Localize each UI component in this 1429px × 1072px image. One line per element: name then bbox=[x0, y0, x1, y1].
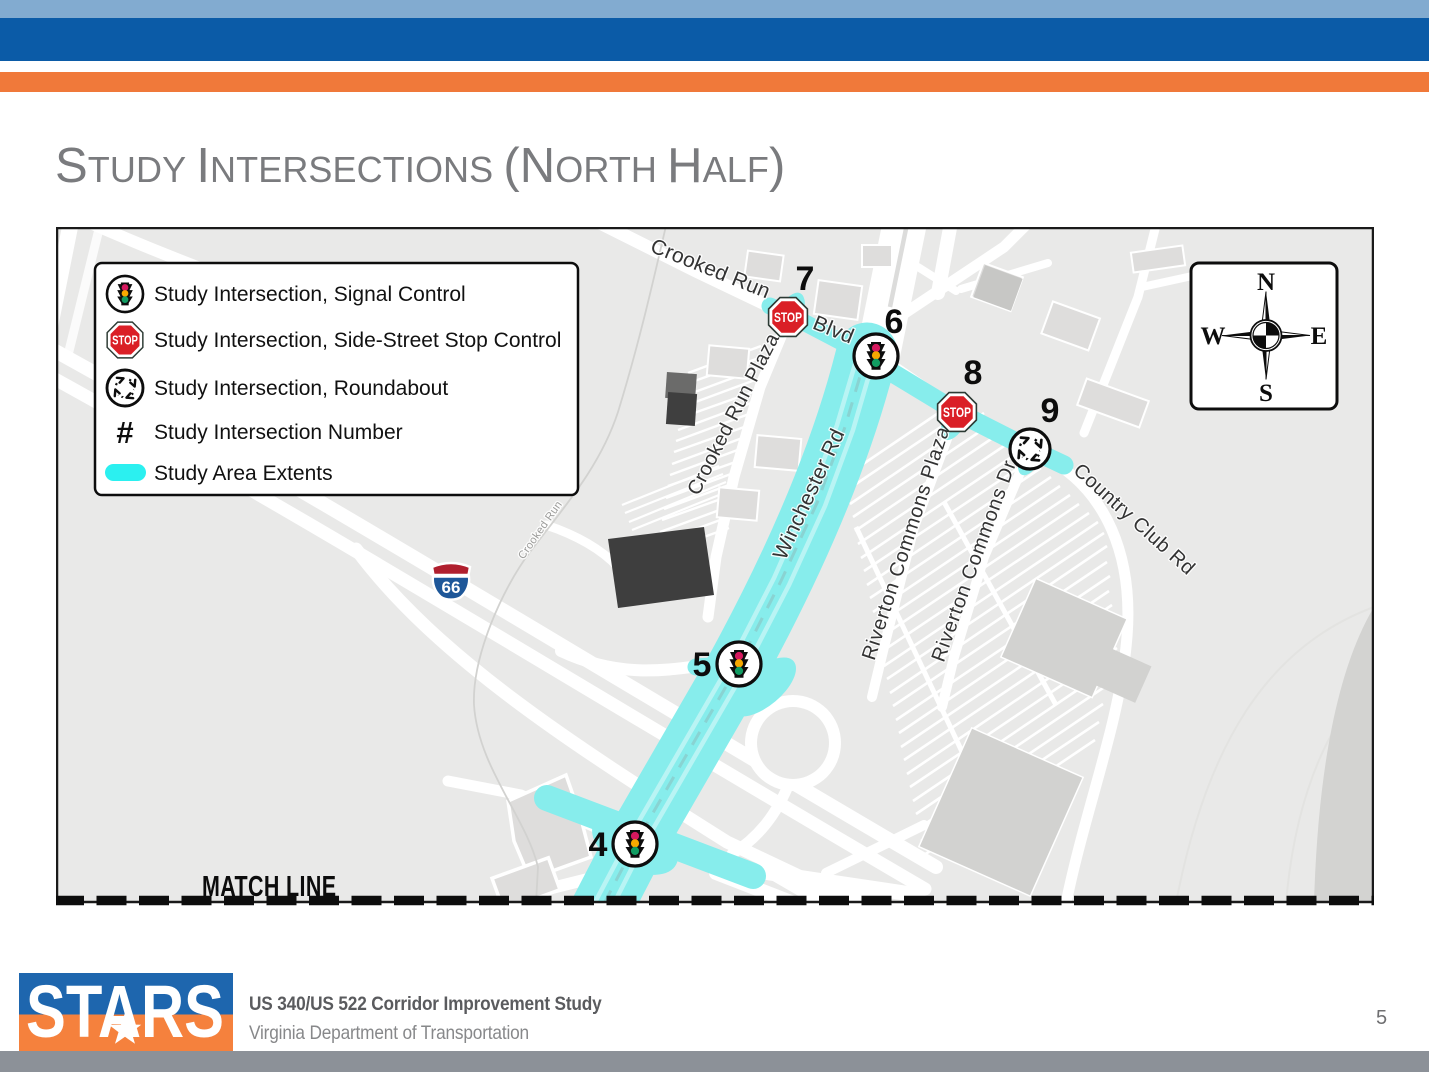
svg-text:4: 4 bbox=[589, 826, 608, 864]
svg-text:W: W bbox=[1201, 323, 1226, 350]
svg-text:66: 66 bbox=[442, 578, 461, 597]
svg-text:Study Intersection, Roundabout: Study Intersection, Roundabout bbox=[154, 377, 448, 400]
svg-text:E: E bbox=[1311, 323, 1328, 350]
svg-text:MATCH LINE: MATCH LINE bbox=[202, 871, 336, 903]
svg-text:STARS: STARS bbox=[26, 973, 224, 1051]
svg-text:Study Intersection, Signal Con: Study Intersection, Signal Control bbox=[154, 283, 466, 306]
svg-text:9: 9 bbox=[1041, 392, 1060, 430]
svg-text:6: 6 bbox=[885, 303, 904, 341]
svg-text:5: 5 bbox=[693, 646, 712, 684]
svg-text:8: 8 bbox=[964, 354, 983, 392]
svg-text:7: 7 bbox=[796, 260, 815, 298]
svg-text:#: # bbox=[116, 415, 133, 450]
svg-text:N: N bbox=[1257, 269, 1275, 296]
svg-text:Study Intersection, Side-Stree: Study Intersection, Side-Street Stop Con… bbox=[154, 329, 561, 352]
svg-text:Study Area Extents: Study Area Extents bbox=[154, 462, 333, 485]
svg-text:S: S bbox=[1259, 380, 1273, 407]
svg-text:Study Intersection Number: Study Intersection Number bbox=[154, 421, 403, 444]
